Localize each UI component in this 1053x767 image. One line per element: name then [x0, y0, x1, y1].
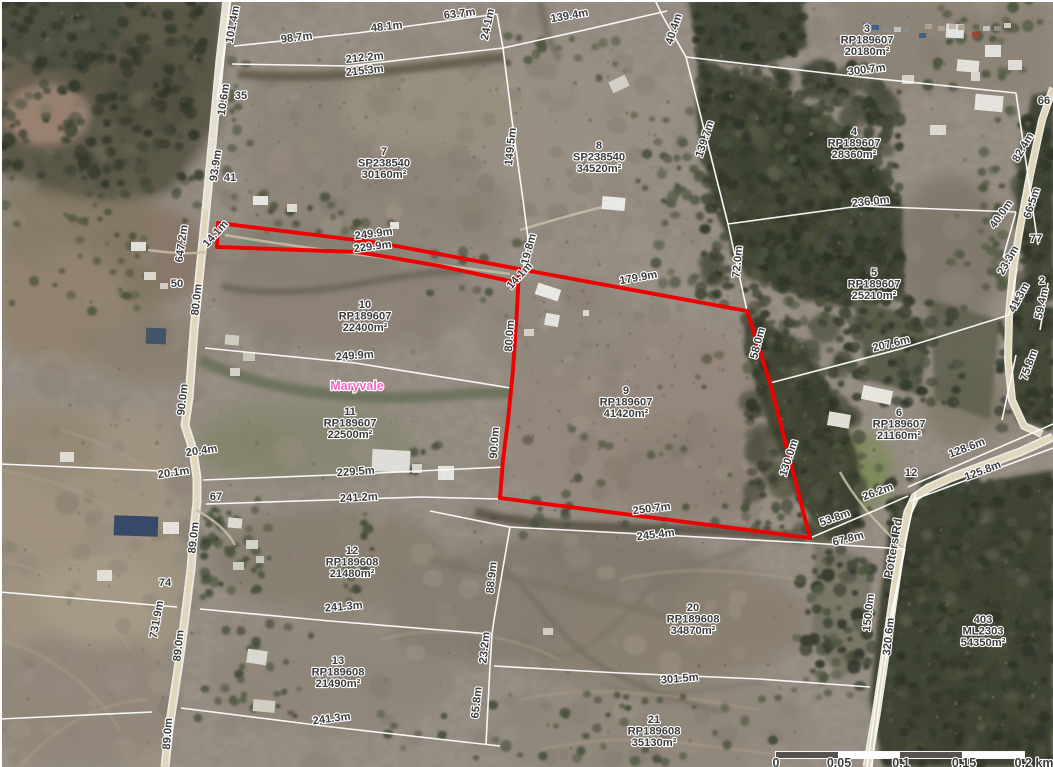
svg-text:66: 66: [1038, 95, 1050, 107]
svg-text:74: 74: [159, 577, 172, 589]
svg-text:89.0m: 89.0m: [161, 718, 175, 751]
svg-text:20: 20: [687, 602, 699, 614]
svg-text:RP189607: RP189607: [600, 397, 653, 409]
svg-text:3: 3: [864, 23, 870, 35]
svg-text:35: 35: [235, 90, 247, 102]
svg-text:SP238540: SP238540: [573, 152, 625, 164]
svg-text:Maryvale: Maryvale: [330, 379, 384, 393]
svg-text:25210m²: 25210m²: [852, 290, 897, 302]
svg-text:ML2303: ML2303: [962, 626, 1003, 638]
svg-text:RP189608: RP189608: [628, 726, 681, 738]
svg-text:6: 6: [896, 407, 902, 419]
svg-text:2: 2: [1039, 275, 1045, 287]
svg-text:22500m²: 22500m²: [328, 429, 373, 441]
svg-text:21160m²: 21160m²: [877, 430, 921, 442]
svg-text:0: 0: [773, 756, 780, 767]
svg-text:67: 67: [210, 491, 222, 503]
svg-text:13: 13: [332, 655, 344, 667]
svg-text:12: 12: [905, 467, 917, 479]
svg-text:RP189607: RP189607: [339, 311, 392, 323]
svg-text:30160m²: 30160m²: [362, 169, 407, 181]
svg-text:10: 10: [359, 299, 371, 311]
svg-text:4: 4: [851, 126, 858, 138]
svg-text:0.15: 0.15: [952, 756, 976, 767]
svg-text:22400m²: 22400m²: [343, 322, 388, 334]
svg-text:90.0m: 90.0m: [488, 427, 502, 460]
svg-text:21480m²: 21480m²: [330, 568, 375, 580]
svg-text:RP189607: RP189607: [848, 279, 901, 291]
svg-text:35130m²: 35130m²: [632, 737, 677, 749]
svg-text:403: 403: [974, 614, 993, 626]
svg-text:241.2m: 241.2m: [340, 491, 379, 505]
svg-text:RP189608: RP189608: [312, 667, 365, 679]
svg-text:21490m²: 21490m²: [316, 678, 361, 690]
svg-text:RP189608: RP189608: [326, 557, 379, 569]
svg-text:0.2 km: 0.2 km: [1015, 756, 1053, 767]
svg-text:7: 7: [381, 146, 387, 158]
svg-text:5: 5: [871, 267, 877, 279]
svg-text:21: 21: [648, 714, 660, 726]
svg-text:34870m²: 34870m²: [671, 625, 716, 637]
svg-text:20180m²: 20180m²: [845, 46, 890, 58]
svg-text:50: 50: [171, 278, 183, 290]
svg-text:RP189607: RP189607: [841, 35, 894, 47]
svg-text:RP189607: RP189607: [828, 138, 881, 150]
svg-text:28360m²: 28360m²: [832, 149, 877, 161]
svg-text:RP189608: RP189608: [667, 614, 720, 626]
svg-text:11: 11: [344, 406, 356, 418]
svg-text:0.1: 0.1: [892, 756, 909, 767]
svg-text:41420m²: 41420m²: [604, 408, 649, 420]
svg-text:80.0m: 80.0m: [503, 320, 517, 353]
svg-text:8: 8: [596, 140, 602, 152]
svg-text:34520m²: 34520m²: [577, 163, 622, 175]
svg-text:0.05: 0.05: [827, 756, 851, 767]
svg-text:77: 77: [1030, 233, 1042, 245]
svg-text:12: 12: [346, 545, 358, 557]
svg-text:54350m²: 54350m²: [961, 637, 1006, 649]
svg-text:41: 41: [224, 172, 236, 184]
svg-text:RP189607: RP189607: [324, 418, 377, 430]
svg-text:9: 9: [623, 385, 629, 397]
svg-text:RP189607: RP189607: [873, 419, 926, 431]
svg-text:SP238540: SP238540: [358, 158, 410, 170]
